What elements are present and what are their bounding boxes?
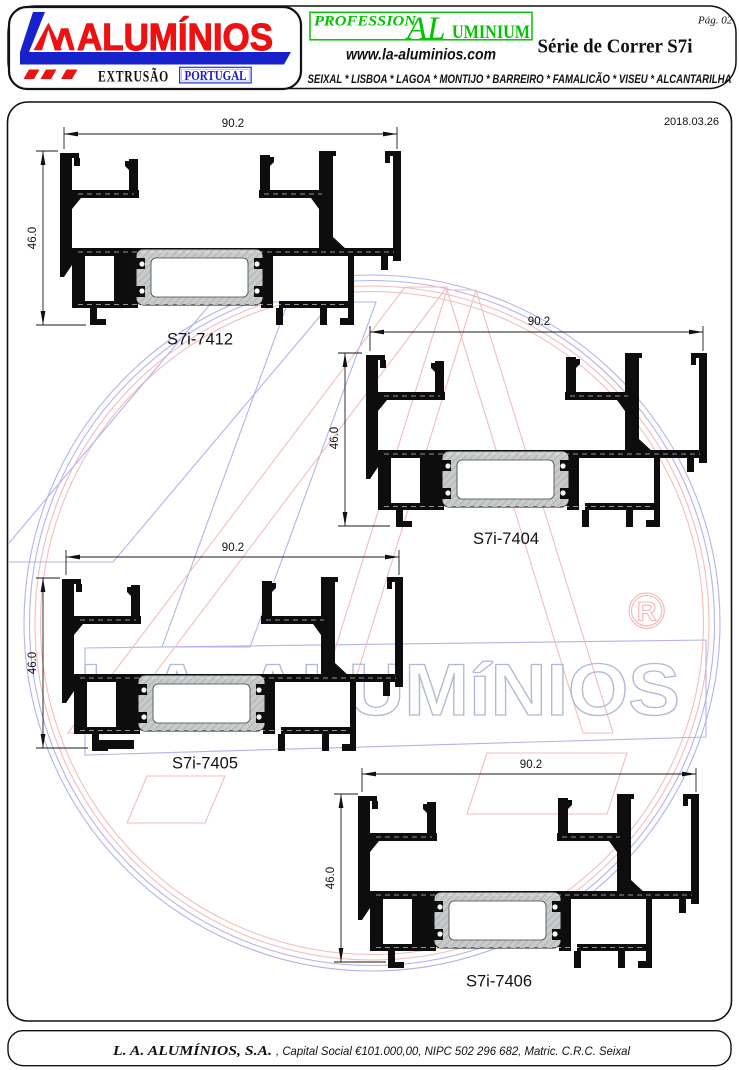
svg-text:2018.03.26: 2018.03.26 — [664, 116, 719, 128]
svg-text:46.0: 46.0 — [329, 427, 341, 449]
svg-text:90.2: 90.2 — [520, 759, 542, 771]
svg-text:46.0: 46.0 — [325, 867, 337, 889]
svg-text:UMINIUM: UMINIUM — [452, 22, 530, 43]
svg-text:PROFESSION: PROFESSION — [314, 14, 417, 30]
svg-text:46.0: 46.0 — [27, 652, 39, 674]
svg-text:R: R — [637, 597, 657, 627]
svg-text:90.2: 90.2 — [528, 316, 550, 328]
svg-text:Série de Correr S7i: Série de Correr S7i — [538, 37, 694, 58]
svg-text:PORTUGAL: PORTUGAL — [185, 68, 247, 83]
svg-text:, Capital Social €101.000,00,: , Capital Social €101.000,00, NIPC 502 2… — [276, 1044, 630, 1058]
svg-text:AL: AL — [405, 11, 446, 47]
svg-text:90.2: 90.2 — [222, 542, 244, 554]
svg-text:www.la-aluminios.com: www.la-aluminios.com — [346, 47, 496, 64]
svg-text:L. A. ALUMÍNIOS, S.A.: L. A. ALUMÍNIOS, S.A. — [112, 1042, 272, 1059]
svg-text:Pág. 02: Pág. 02 — [697, 15, 733, 27]
svg-text:ALUMÍNIOS: ALUMÍNIOS — [77, 15, 273, 59]
svg-text:46.0: 46.0 — [27, 227, 39, 249]
svg-text:S7i-7406: S7i-7406 — [466, 973, 532, 991]
svg-text:S7i-7405: S7i-7405 — [172, 755, 238, 773]
svg-text:90.2: 90.2 — [222, 118, 244, 130]
svg-text:EXTRUSÃO: EXTRUSÃO — [98, 67, 169, 85]
svg-text:SEIXAL * LISBOA * LAGOA * MONT: SEIXAL * LISBOA * LAGOA * MONTIJO * BARR… — [308, 73, 732, 86]
svg-text:S7i-7404: S7i-7404 — [473, 530, 539, 548]
svg-text:S7i-7412: S7i-7412 — [167, 331, 233, 349]
